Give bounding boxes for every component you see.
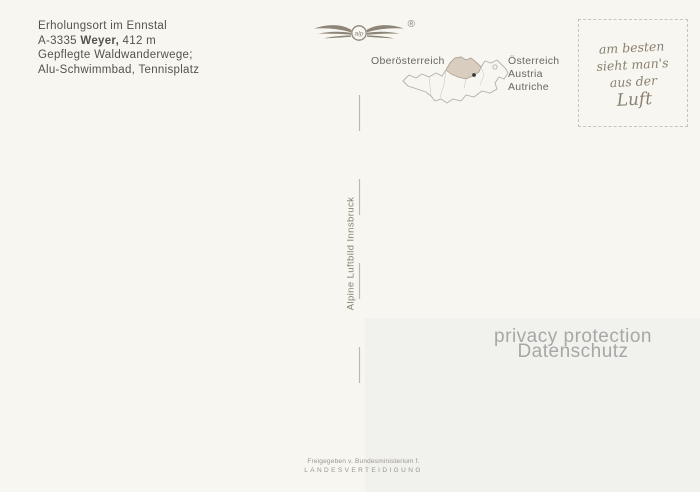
- resort-info-line1: Erholungsort im Ennstal: [38, 19, 199, 34]
- location-dot-weyer: [472, 73, 476, 77]
- ministry-imprint: Freigegeben v. Bundesministerium f. LAND…: [291, 458, 436, 474]
- map-country-labels: Österreich Austria Autriche: [508, 55, 559, 94]
- resort-info-line2: A-3335 Weyer, 412 m: [38, 34, 199, 49]
- slogan-line4: Luft: [598, 88, 671, 112]
- divider-dashed-line: [358, 95, 361, 430]
- alpine-wings-logo-icon: alp ®: [311, 20, 411, 50]
- publisher-credit-vertical: Alpine Luftbild Innsbruck: [346, 184, 357, 324]
- postcard-back: Erholungsort im Ennstal A-3335 Weyer, 41…: [0, 0, 700, 492]
- privacy-line-de: Datenschutz: [440, 344, 700, 359]
- resort-name: Weyer,: [80, 35, 119, 47]
- country-label-de: Österreich: [508, 55, 559, 68]
- resort-info-line4: Alu-Schwimmbad, Tennisplatz: [38, 63, 199, 78]
- wings-logo-graphic: alp: [311, 20, 407, 48]
- privacy-watermark: privacy protection Datenschutz: [440, 329, 700, 359]
- imprint-line2: LANDESVERTEIDIGUNG: [291, 467, 436, 474]
- country-label-fr: Autriche: [508, 81, 559, 94]
- country-label-en: Austria: [508, 68, 559, 81]
- imprint-line1: Freigegeben v. Bundesministerium f.: [291, 458, 436, 465]
- slogan-line2: sieht man's: [596, 54, 669, 75]
- stamp-box: am besten sieht man's aus der Luft: [578, 19, 688, 127]
- austria-map: [400, 54, 512, 114]
- slogan-script: am besten sieht man's aus der Luft: [595, 37, 671, 112]
- resort-info-line3: Gepflegte Waldwanderwege;: [38, 48, 199, 63]
- registered-trademark-symbol: ®: [408, 19, 415, 30]
- logo-monogram: alp: [355, 31, 364, 38]
- city-ring-icon: [493, 65, 497, 69]
- resort-info: Erholungsort im Ennstal A-3335 Weyer, 41…: [38, 19, 199, 77]
